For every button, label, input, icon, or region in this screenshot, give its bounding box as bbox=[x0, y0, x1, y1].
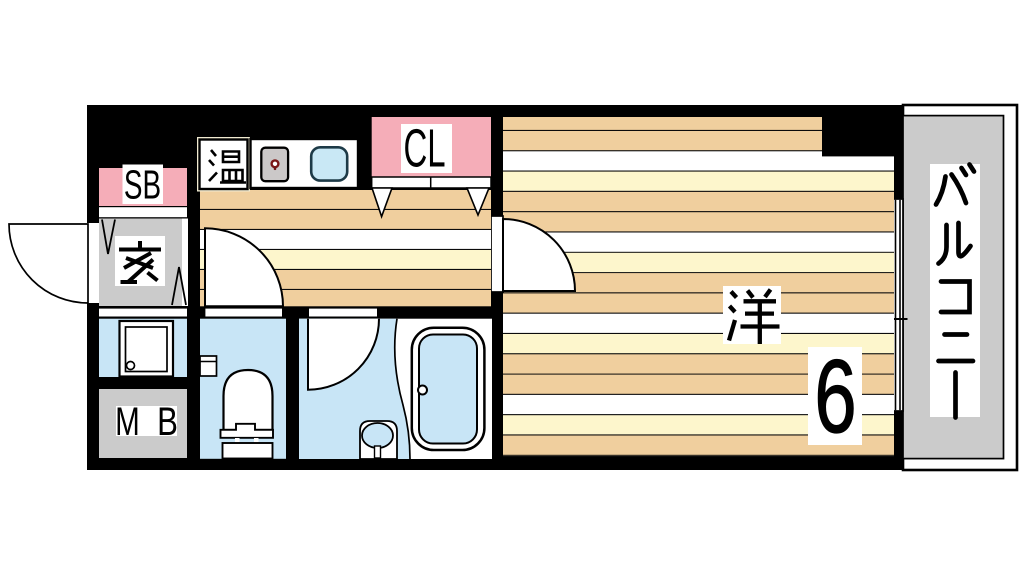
svg-text:B: B bbox=[157, 399, 178, 444]
svg-text:CL: CL bbox=[403, 119, 445, 178]
svg-text:6: 6 bbox=[814, 339, 856, 454]
svg-text:M: M bbox=[115, 400, 140, 444]
svg-text:SB: SB bbox=[124, 162, 161, 208]
